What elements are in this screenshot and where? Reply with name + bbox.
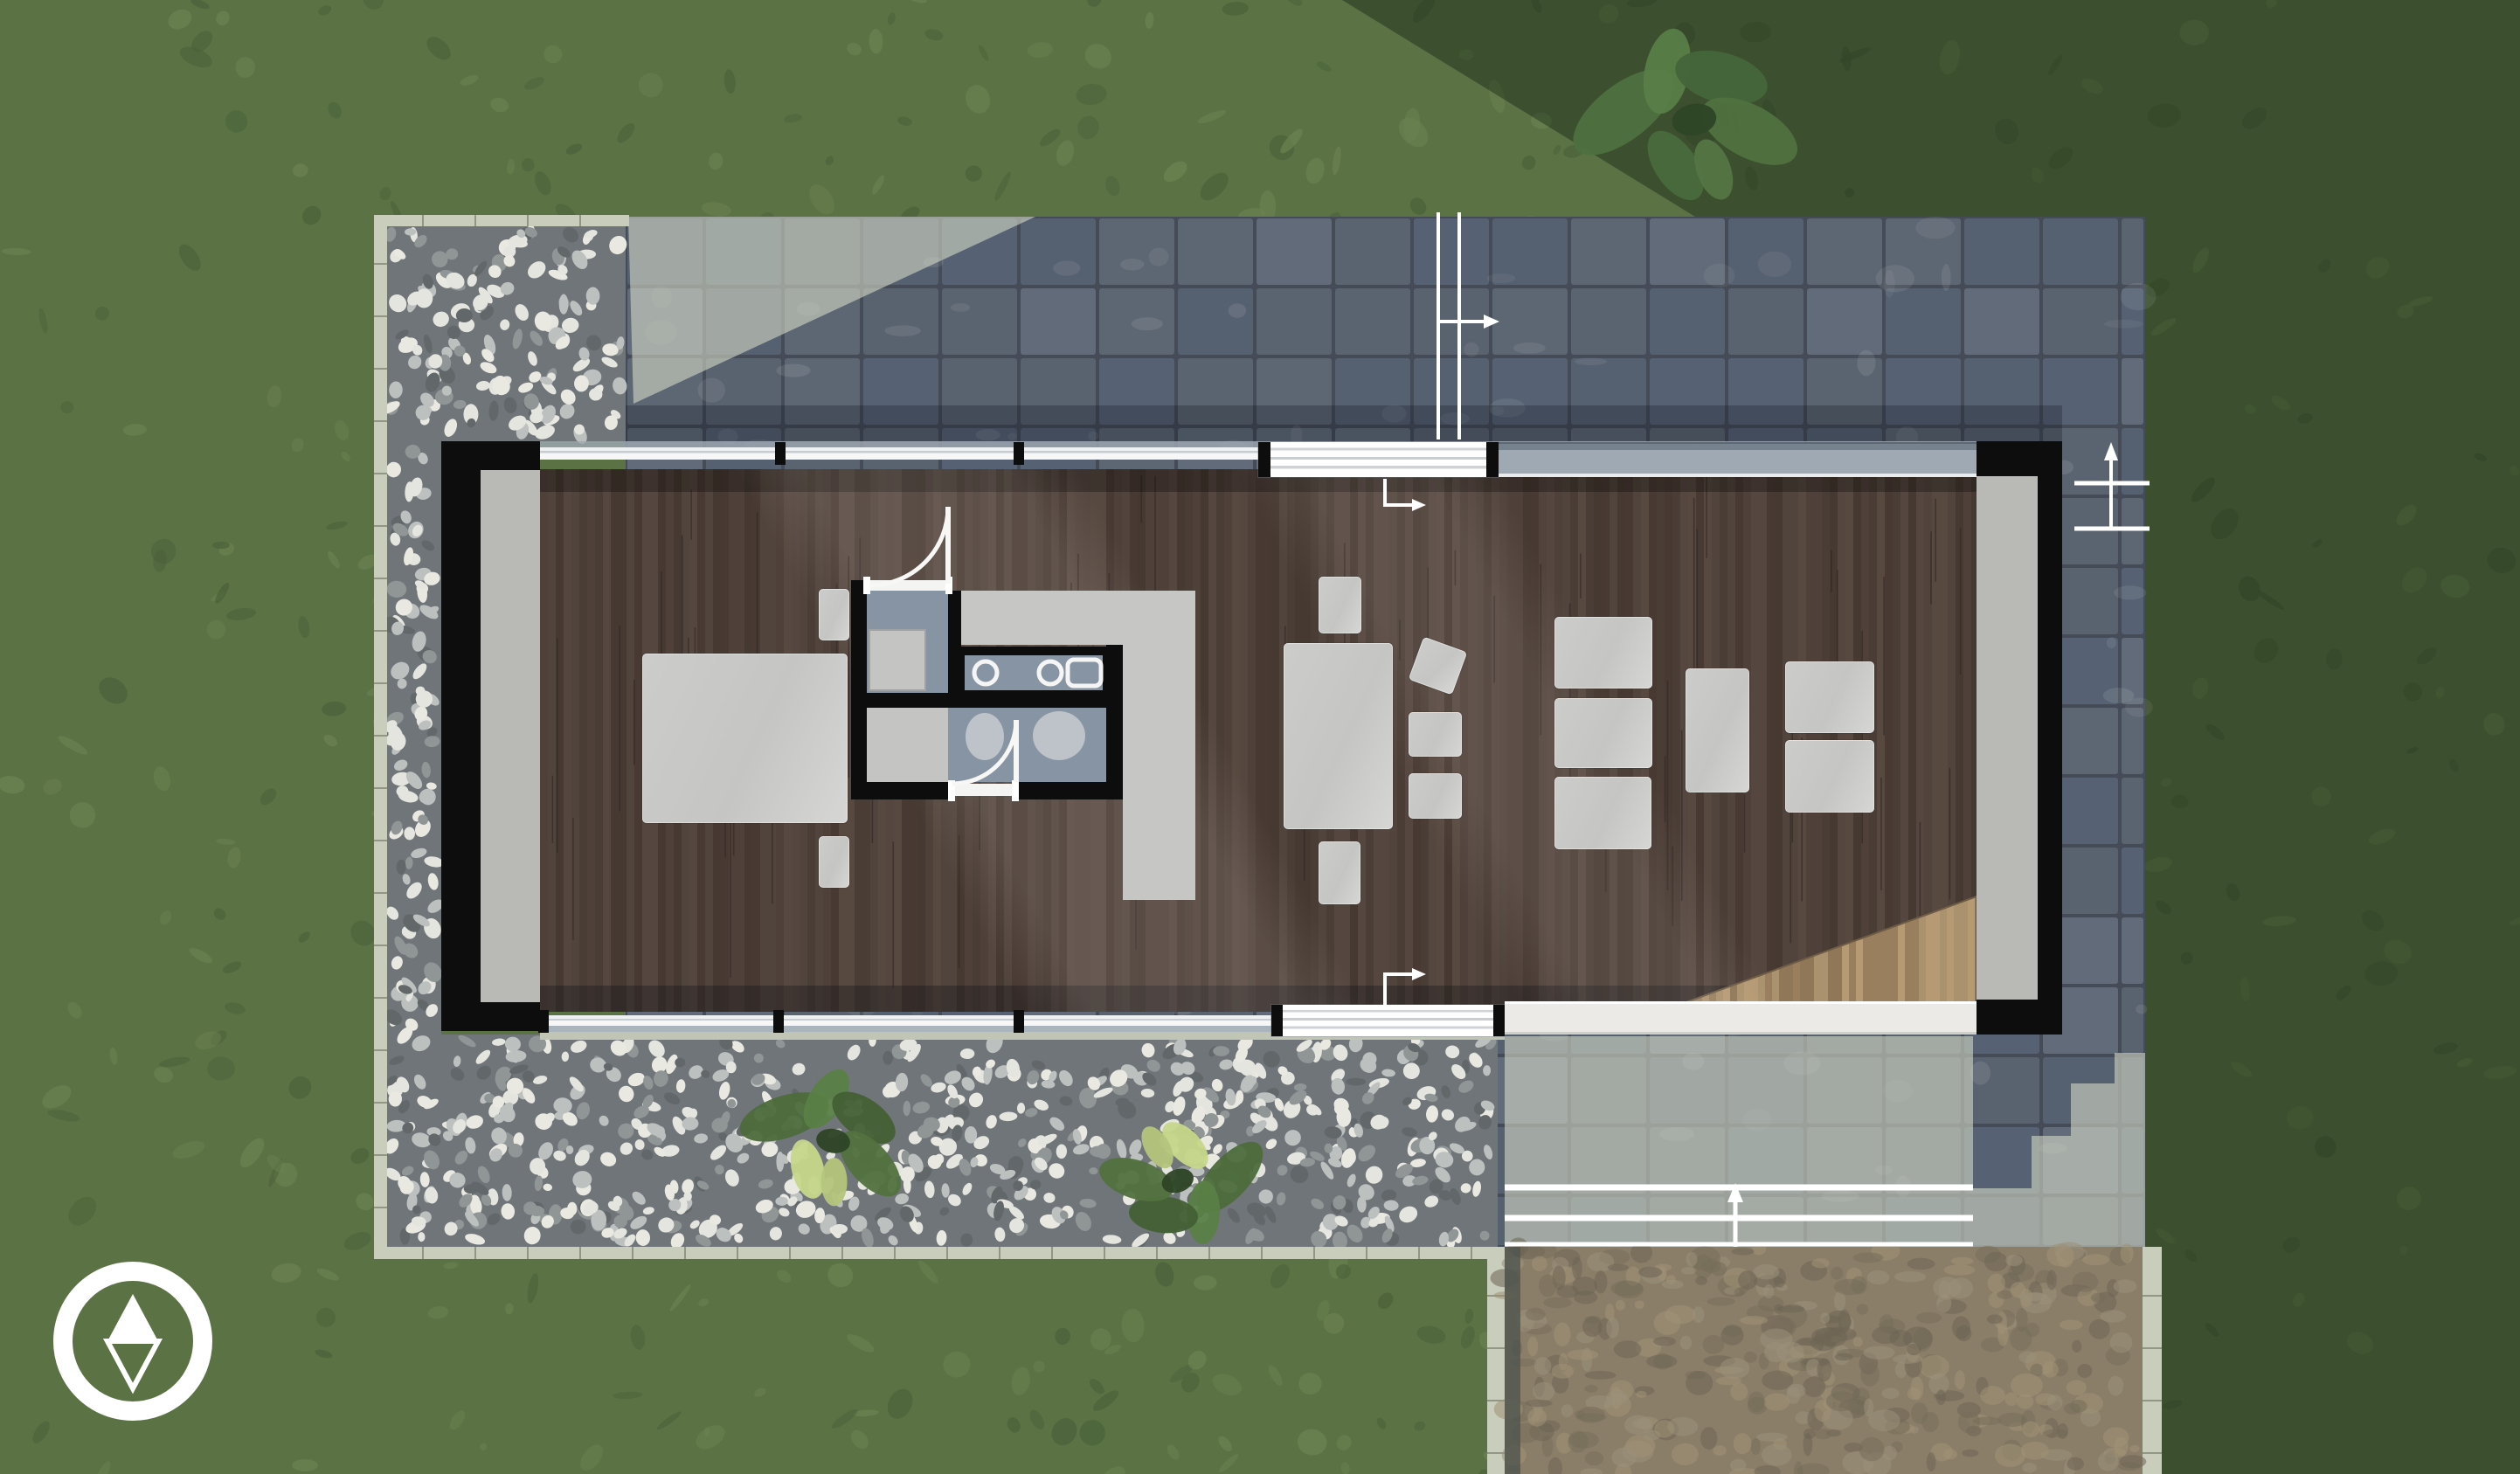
pebble [396, 335, 420, 356]
pebble [592, 1054, 611, 1072]
pebble [1321, 1212, 1340, 1232]
pebble [405, 294, 420, 314]
pebble [1256, 1091, 1277, 1104]
pebble [415, 487, 433, 502]
pebble [829, 1190, 845, 1209]
pebble [509, 1062, 530, 1076]
pebble [894, 1193, 910, 1206]
pebble [419, 1211, 432, 1224]
pebble [578, 1198, 598, 1218]
border-joint [374, 787, 387, 789]
pebble [425, 691, 441, 708]
pebble [924, 1180, 935, 1199]
sliding-door-white-top [1258, 442, 1499, 477]
dining-table [1284, 643, 1393, 829]
pebble [1309, 1196, 1326, 1211]
pebble [424, 736, 440, 748]
pebble [527, 369, 543, 384]
door-jamb [1012, 780, 1019, 801]
pebble [414, 643, 438, 666]
pebble [416, 785, 437, 806]
pebble [492, 1038, 506, 1047]
pebble [1189, 1181, 1202, 1194]
pebble [907, 1214, 919, 1234]
pebble [1257, 1188, 1274, 1205]
pebble [1171, 1095, 1187, 1117]
pebble [424, 1001, 440, 1019]
paver-tile [706, 1057, 781, 1124]
pebble [411, 1215, 426, 1227]
border-joint [1156, 1247, 1158, 1259]
pebble [1461, 1082, 1471, 1093]
pebble [387, 246, 405, 265]
pebble [1163, 1099, 1177, 1114]
pebble [495, 236, 519, 260]
pebble [489, 1125, 509, 1146]
pebble [1336, 1107, 1351, 1127]
pebble [1222, 1166, 1243, 1186]
pebble [1448, 1187, 1463, 1206]
pebble [993, 1062, 1012, 1081]
pebble [903, 1176, 911, 1194]
pebble [1252, 1097, 1268, 1111]
pebble [461, 351, 473, 365]
armchair [1785, 661, 1874, 733]
pebble [492, 1096, 504, 1109]
pebble [570, 1219, 586, 1235]
paver-tile [1178, 1057, 1253, 1124]
pebble [398, 992, 421, 1014]
pebble [1364, 1165, 1385, 1186]
paver-tile [1335, 218, 1410, 285]
pebble [935, 1117, 950, 1134]
pebble [1360, 1090, 1376, 1106]
pebble [535, 1164, 550, 1180]
pebble [945, 1093, 966, 1107]
paver-tile [2043, 358, 2118, 425]
pebble [669, 1180, 679, 1194]
pebble [826, 1126, 843, 1140]
pebble [507, 232, 529, 249]
pebble [1247, 1226, 1266, 1244]
pebble [729, 1039, 746, 1055]
paver-tile [1650, 1197, 1725, 1245]
pebble [1427, 1130, 1439, 1142]
pebble [626, 1070, 647, 1089]
pebble [661, 1219, 682, 1235]
pebble [405, 983, 416, 1002]
pebble [1007, 1155, 1024, 1174]
pebble [1198, 1175, 1217, 1199]
pebble [539, 312, 563, 336]
sofa-module [1554, 777, 1651, 849]
pebble [1079, 1198, 1097, 1208]
pebble [790, 1087, 802, 1104]
border-joint [374, 1102, 387, 1104]
pebble [479, 347, 496, 364]
sliding-door-white-bottom [1271, 1005, 1505, 1036]
paver-tile [1492, 358, 1568, 425]
pebble [903, 1101, 910, 1117]
pebble [1005, 1057, 1021, 1078]
pebble [1263, 1205, 1278, 1225]
pebble [1448, 1141, 1466, 1156]
paver-tile [785, 218, 860, 285]
pebble [493, 375, 508, 391]
pebble [1365, 1080, 1382, 1098]
pebble [499, 318, 510, 331]
border-joint [2143, 1295, 2162, 1297]
pebble [1191, 1125, 1207, 1140]
pebble [786, 1194, 799, 1208]
pebble [759, 1090, 776, 1111]
pebble [616, 336, 626, 350]
pebble [972, 1066, 982, 1078]
pebble [493, 1072, 509, 1092]
pebble [421, 1157, 439, 1169]
left-terrace-strip [481, 470, 540, 1002]
pebble [1407, 1097, 1422, 1111]
pebble [511, 328, 524, 349]
pebble [1202, 1104, 1219, 1121]
pebble [1030, 1059, 1046, 1072]
pebble [426, 1131, 443, 1149]
pebble [452, 1218, 466, 1232]
pebble [753, 1107, 768, 1123]
pebble [485, 1211, 502, 1228]
pebble [584, 228, 599, 239]
pebble [867, 1122, 886, 1139]
paver-tile [942, 1057, 1017, 1124]
pebble [1393, 1161, 1416, 1181]
pebble [521, 418, 540, 438]
pebble [938, 1206, 952, 1218]
pebble [588, 1055, 608, 1075]
pebble [848, 1097, 864, 1116]
pebble [1478, 1114, 1493, 1131]
pebble [520, 1069, 537, 1085]
pebble [405, 444, 420, 459]
pebble [426, 397, 442, 413]
pebble [515, 227, 527, 239]
paver-tile [1257, 288, 1332, 355]
pebble [513, 1131, 525, 1147]
pebble [424, 356, 437, 370]
pebble [1191, 1119, 1210, 1138]
cooktop-panel [965, 655, 1103, 690]
paver-tile [2122, 218, 2143, 285]
pebble [1049, 1204, 1068, 1226]
pebble [421, 761, 432, 778]
entry-arrow-head [2104, 442, 2118, 460]
pebble [930, 1081, 947, 1094]
paver-tile [1099, 218, 1174, 285]
pale-border-strip [1487, 1247, 1505, 1474]
pebble [1137, 1070, 1150, 1080]
pebble [388, 1054, 405, 1067]
pebble [390, 954, 405, 971]
border-joint [841, 1247, 843, 1259]
pebble [683, 1191, 693, 1201]
pebble [396, 677, 407, 689]
pebble [420, 647, 439, 666]
pebble [613, 1214, 627, 1228]
pebble [399, 1228, 410, 1244]
pebble [559, 224, 581, 246]
pebble [464, 1232, 487, 1247]
bathroom-floor-left [867, 708, 948, 782]
compass-ring [63, 1271, 203, 1411]
pebble [405, 353, 424, 372]
pebble [675, 1057, 686, 1068]
pebble [960, 1048, 975, 1060]
pebble [467, 1208, 491, 1233]
pebble [1085, 1075, 1103, 1093]
paver-tile [2122, 1197, 2143, 1245]
pebble [456, 1191, 474, 1209]
pebble [1174, 1227, 1187, 1239]
pebble [1407, 1041, 1422, 1054]
paver-tile [1178, 288, 1253, 355]
pebble [1146, 1161, 1158, 1180]
paver-tile [785, 288, 860, 355]
pebble [1444, 1044, 1460, 1059]
border-joint [374, 315, 387, 317]
border-joint [946, 1247, 948, 1259]
pebble [824, 1098, 838, 1117]
paver-tile [1728, 358, 1803, 425]
pebble [412, 912, 432, 929]
pebble [386, 580, 407, 599]
pebble [878, 1220, 893, 1235]
pebble [1330, 1077, 1347, 1096]
pebble [1478, 1102, 1494, 1122]
pebble [692, 1174, 709, 1194]
pebble [609, 408, 622, 420]
pebble [423, 370, 442, 394]
pebble [610, 340, 625, 356]
sunlit-se-area [1505, 1036, 1973, 1247]
pebble [682, 1117, 699, 1131]
pebble [1039, 1213, 1062, 1229]
pebble [390, 528, 398, 545]
door-jamb [945, 577, 952, 594]
pebble [441, 1129, 455, 1143]
right-terrace-strip [1977, 476, 2038, 1000]
mullion-tick [775, 442, 786, 465]
pebble [390, 620, 405, 637]
pebble [491, 376, 512, 397]
paver-tile [627, 1197, 703, 1245]
pebble [1139, 1069, 1159, 1088]
pebble [518, 225, 536, 242]
pebble [577, 249, 597, 260]
pebble [1131, 1069, 1151, 1089]
pebble [422, 334, 433, 355]
pebble [1115, 1180, 1126, 1191]
pebble [897, 1204, 917, 1225]
door-jamb [948, 780, 955, 801]
leaf [1691, 84, 1808, 179]
leaf [1637, 121, 1715, 210]
pebble [1158, 1117, 1181, 1136]
pebble [1160, 1132, 1179, 1150]
border-joint [1366, 1247, 1367, 1259]
paver-tile [1807, 1197, 1882, 1245]
wall-corner-bottom-left [441, 1002, 540, 1031]
pebble [556, 244, 572, 260]
shrub-gravel-left [720, 1047, 930, 1221]
pebble [405, 288, 425, 308]
border-joint [374, 420, 387, 422]
pebble [389, 983, 411, 1003]
pebble [686, 1062, 706, 1082]
pebble [412, 1205, 421, 1214]
pebble [784, 1147, 804, 1167]
paver-tile [1099, 1057, 1174, 1124]
pebble [602, 1062, 613, 1072]
paver-tile [1571, 1197, 1646, 1245]
pebble [404, 827, 415, 840]
bed [642, 654, 848, 823]
pebble [641, 1099, 662, 1113]
paver-tile [2122, 568, 2143, 634]
paver-tile [1178, 218, 1253, 285]
pebble [533, 422, 557, 442]
pebble [862, 1169, 883, 1187]
pebble [574, 1100, 592, 1121]
border-joint [374, 997, 387, 999]
pebble [453, 1055, 461, 1068]
pebble [876, 1214, 896, 1232]
pebble [472, 264, 483, 274]
pebble [443, 1116, 464, 1138]
pebble [487, 1100, 503, 1119]
pebble [538, 375, 553, 386]
pebble [695, 1215, 721, 1242]
pebble [996, 1198, 1014, 1210]
pebble [553, 334, 571, 352]
pebble [793, 1140, 811, 1162]
pebble [600, 355, 620, 370]
pebble [542, 413, 561, 427]
leaf [785, 1136, 830, 1202]
pebble [614, 1235, 634, 1248]
pebble [1340, 1198, 1354, 1214]
pebble [1260, 1048, 1283, 1070]
pebble [569, 247, 591, 272]
pebble [1471, 1180, 1483, 1198]
pebble [411, 343, 424, 356]
pebble [675, 1079, 686, 1094]
mullion-tick [1014, 1010, 1024, 1033]
pebble [574, 1180, 592, 1197]
leaf [1185, 1131, 1274, 1223]
pebble [1472, 1100, 1487, 1116]
paver-tile [1807, 358, 1882, 425]
pebble [734, 1125, 750, 1140]
pebble [1028, 1155, 1048, 1175]
paver-tile [942, 288, 1017, 355]
pebble [516, 380, 534, 395]
pebble [731, 1125, 745, 1148]
pebble [973, 1152, 989, 1168]
pebble [470, 292, 492, 314]
pebble [1192, 1152, 1214, 1167]
pebble [1207, 1044, 1220, 1058]
pebble [1251, 1210, 1268, 1227]
paver-tile [1886, 1057, 1961, 1124]
pebble [488, 377, 503, 396]
terrace-white-band [1505, 1001, 1977, 1035]
pebble [954, 1062, 970, 1082]
border-joint [2143, 1452, 2162, 1454]
pebble [402, 546, 415, 566]
pebble [870, 1169, 889, 1188]
pebble [477, 303, 496, 322]
pebble [476, 285, 495, 306]
pebble [538, 1214, 550, 1223]
pebble [393, 978, 412, 996]
pebble [416, 284, 433, 300]
slider-cap [1486, 442, 1499, 477]
paver-tile [863, 218, 938, 285]
pebble [763, 1076, 782, 1092]
shrub-top-right [1544, 1, 1817, 228]
pebble [999, 1111, 1017, 1122]
pebble [1479, 1098, 1496, 1112]
paver-tile [1964, 288, 2039, 355]
pebble [1187, 1069, 1205, 1084]
pebble [942, 1068, 963, 1086]
pebble [1109, 1077, 1131, 1098]
pebble [778, 1206, 792, 1218]
pebble [945, 1192, 963, 1208]
pebble [1249, 1167, 1259, 1183]
pebble [675, 1196, 688, 1214]
paver-tile [1335, 1197, 1410, 1245]
pebble [1025, 1136, 1045, 1156]
pebble [1163, 1143, 1180, 1160]
pebble [1218, 1058, 1234, 1071]
paver-tile [1178, 1197, 1253, 1245]
pebble [600, 1227, 615, 1240]
pebble [988, 1162, 1007, 1176]
pebble [1160, 1161, 1175, 1178]
pebble [696, 1179, 710, 1192]
paver-tile [2043, 1127, 2118, 1194]
pebble [426, 782, 437, 791]
paver-tile [1257, 358, 1332, 425]
pebble [1190, 1176, 1200, 1187]
pebble [1366, 1204, 1381, 1221]
paver-tile [942, 218, 1017, 285]
core-wall [1016, 782, 1123, 799]
pebble [414, 566, 433, 582]
pebble [1181, 1118, 1200, 1138]
pebble [412, 687, 436, 710]
leaf [1154, 1114, 1216, 1177]
pebble [982, 1063, 993, 1085]
pebble [453, 1111, 469, 1133]
pebble [398, 1177, 417, 1196]
leaf [814, 1126, 852, 1156]
pebble [407, 690, 427, 711]
pebble [735, 1151, 751, 1166]
pebble [581, 1200, 600, 1216]
pebble [722, 1131, 746, 1156]
pebble [912, 1164, 935, 1185]
